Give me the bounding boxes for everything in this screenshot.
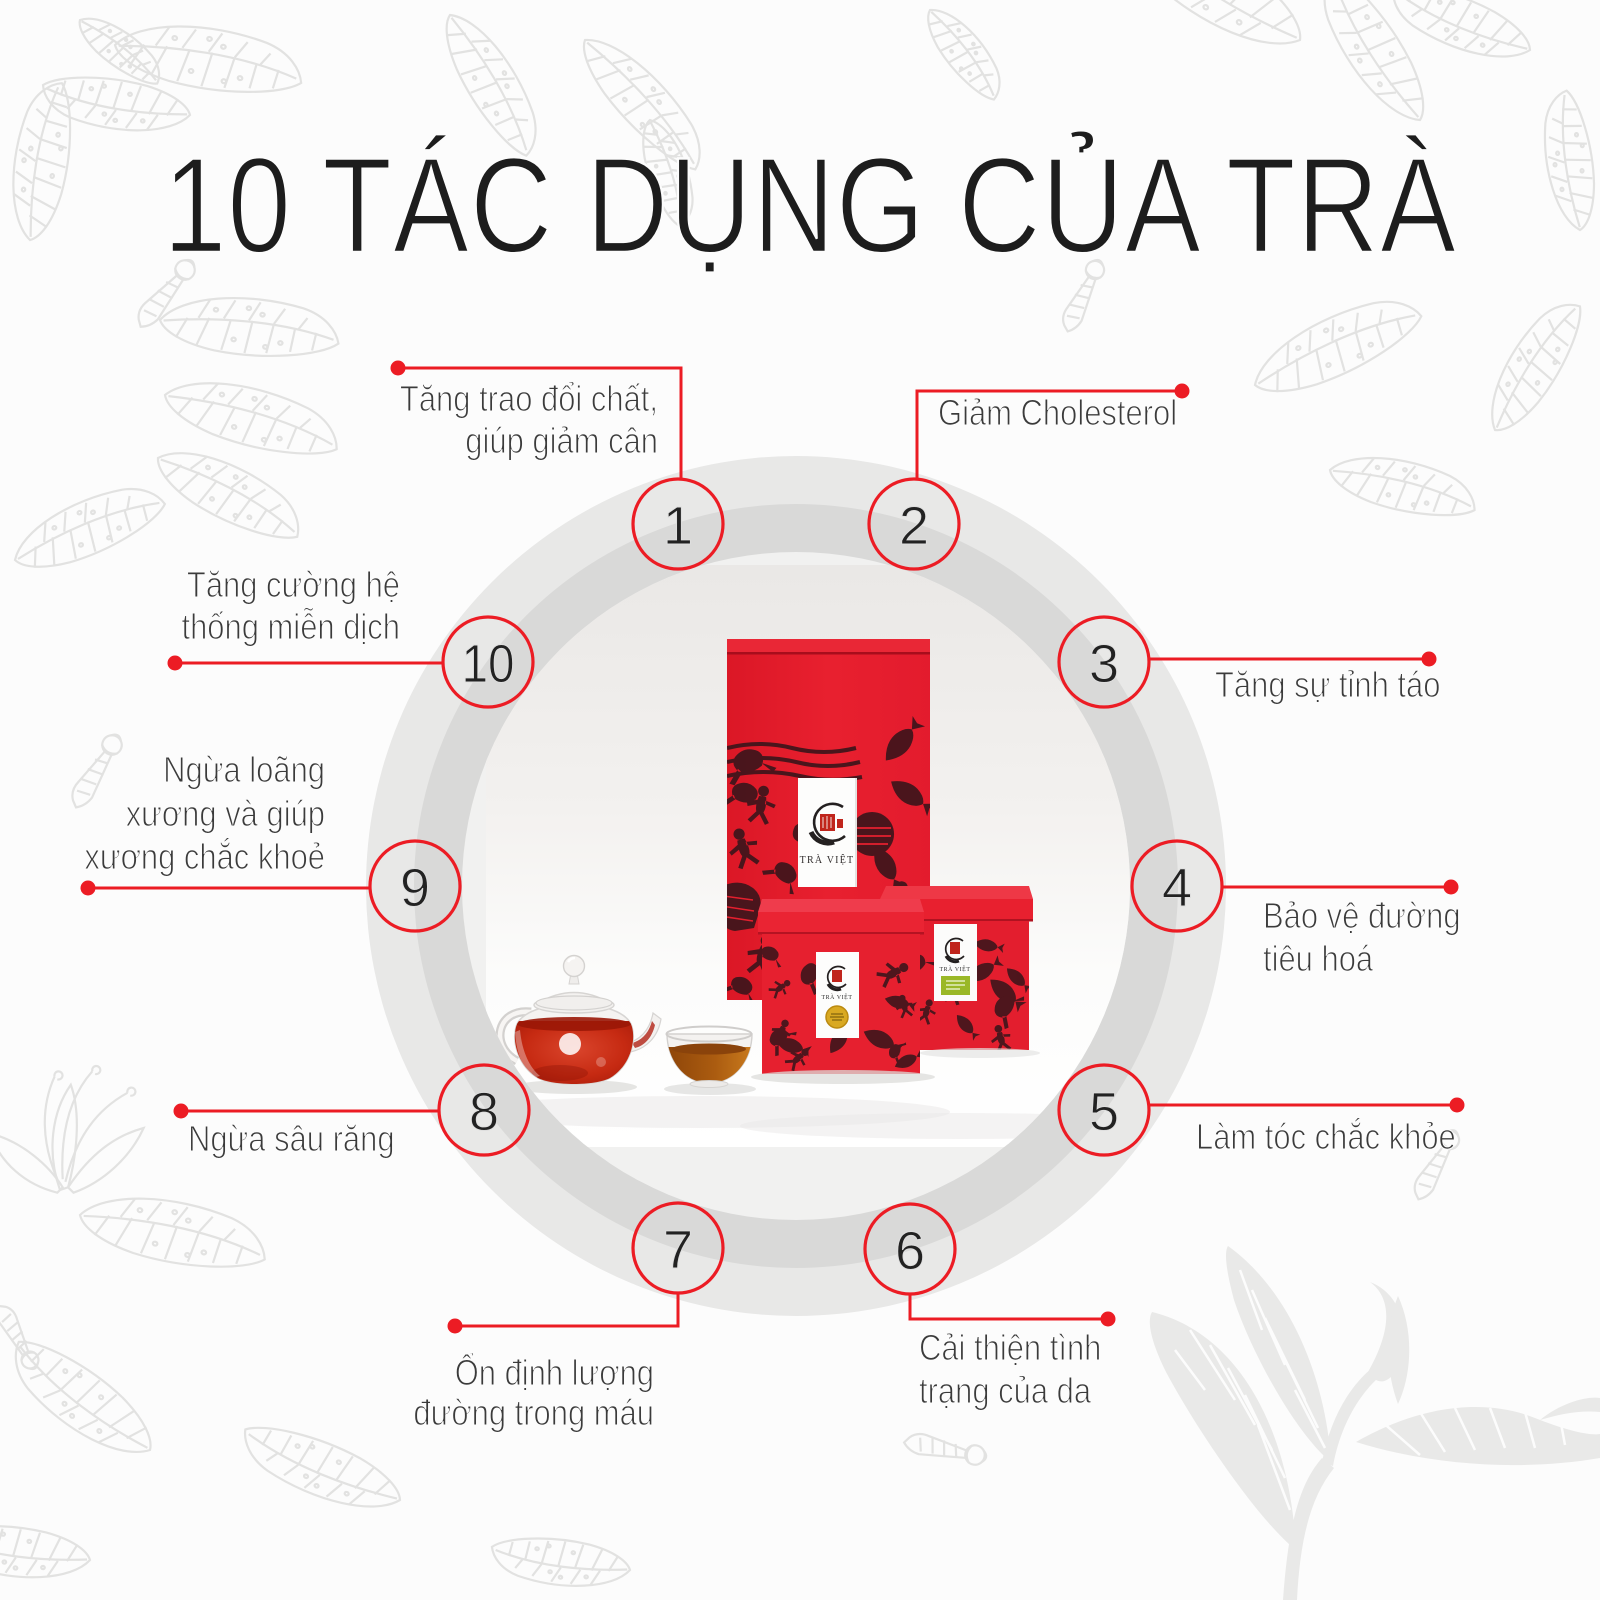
svg-text:TRÀ VIỆT: TRÀ VIỆT [822, 993, 853, 1001]
svg-text:Ngừa sâu răng: Ngừa sâu răng [188, 1120, 395, 1160]
svg-text:Giảm Cholesterol: Giảm Cholesterol [938, 394, 1177, 434]
svg-text:4: 4 [1162, 858, 1192, 918]
svg-text:3: 3 [1089, 634, 1119, 694]
svg-text:5: 5 [1089, 1082, 1119, 1142]
svg-text:TRÀ VIỆT: TRÀ VIỆT [940, 965, 971, 973]
svg-text:9: 9 [400, 858, 430, 918]
svg-text:10 TÁC DỤNG CỦA TRÀ: 10 TÁC DỤNG CỦA TRÀ [163, 129, 1457, 282]
svg-text:1: 1 [663, 496, 693, 556]
svg-text:10: 10 [462, 633, 515, 694]
svg-text:Tăng sự tỉnh táo: Tăng sự tỉnh táo [1215, 666, 1440, 706]
svg-text:6: 6 [895, 1221, 925, 1281]
svg-text:8: 8 [469, 1082, 499, 1142]
svg-text:TRÀ VIỆT: TRÀ VIỆT [800, 854, 855, 866]
svg-text:2: 2 [899, 496, 929, 556]
svg-text:7: 7 [663, 1220, 693, 1280]
svg-text:Làm tóc chắc khỏe: Làm tóc chắc khỏe [1196, 1117, 1456, 1158]
